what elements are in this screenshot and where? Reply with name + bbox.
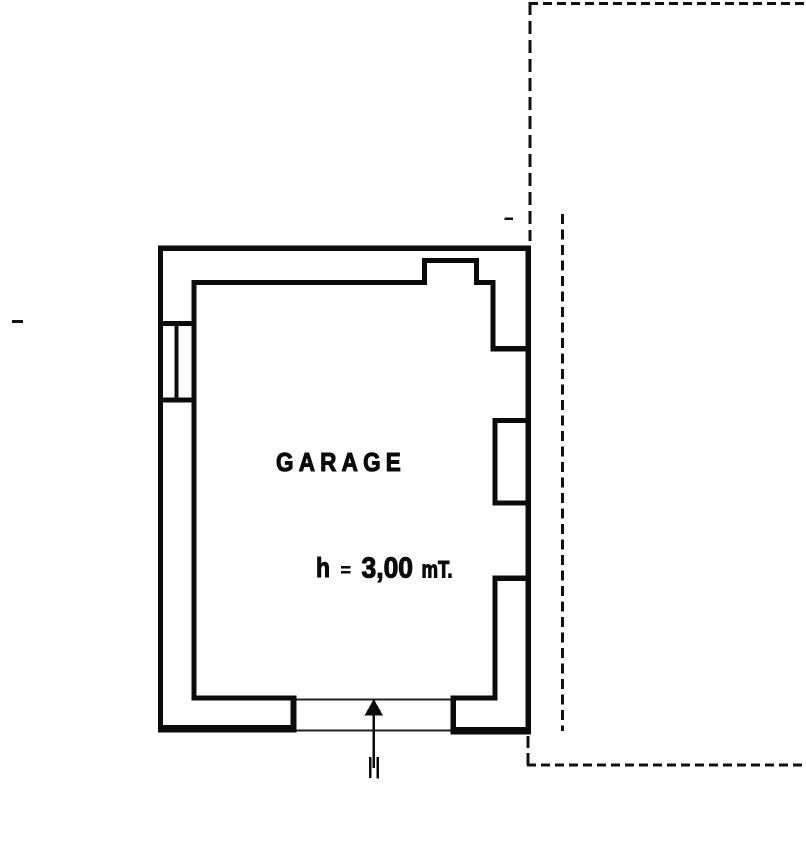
svg-text:h: h bbox=[316, 552, 330, 583]
svg-text:GARAGE: GARAGE bbox=[276, 447, 406, 477]
svg-text:mT.: mT. bbox=[422, 557, 453, 584]
svg-text:3,00: 3,00 bbox=[362, 553, 414, 585]
